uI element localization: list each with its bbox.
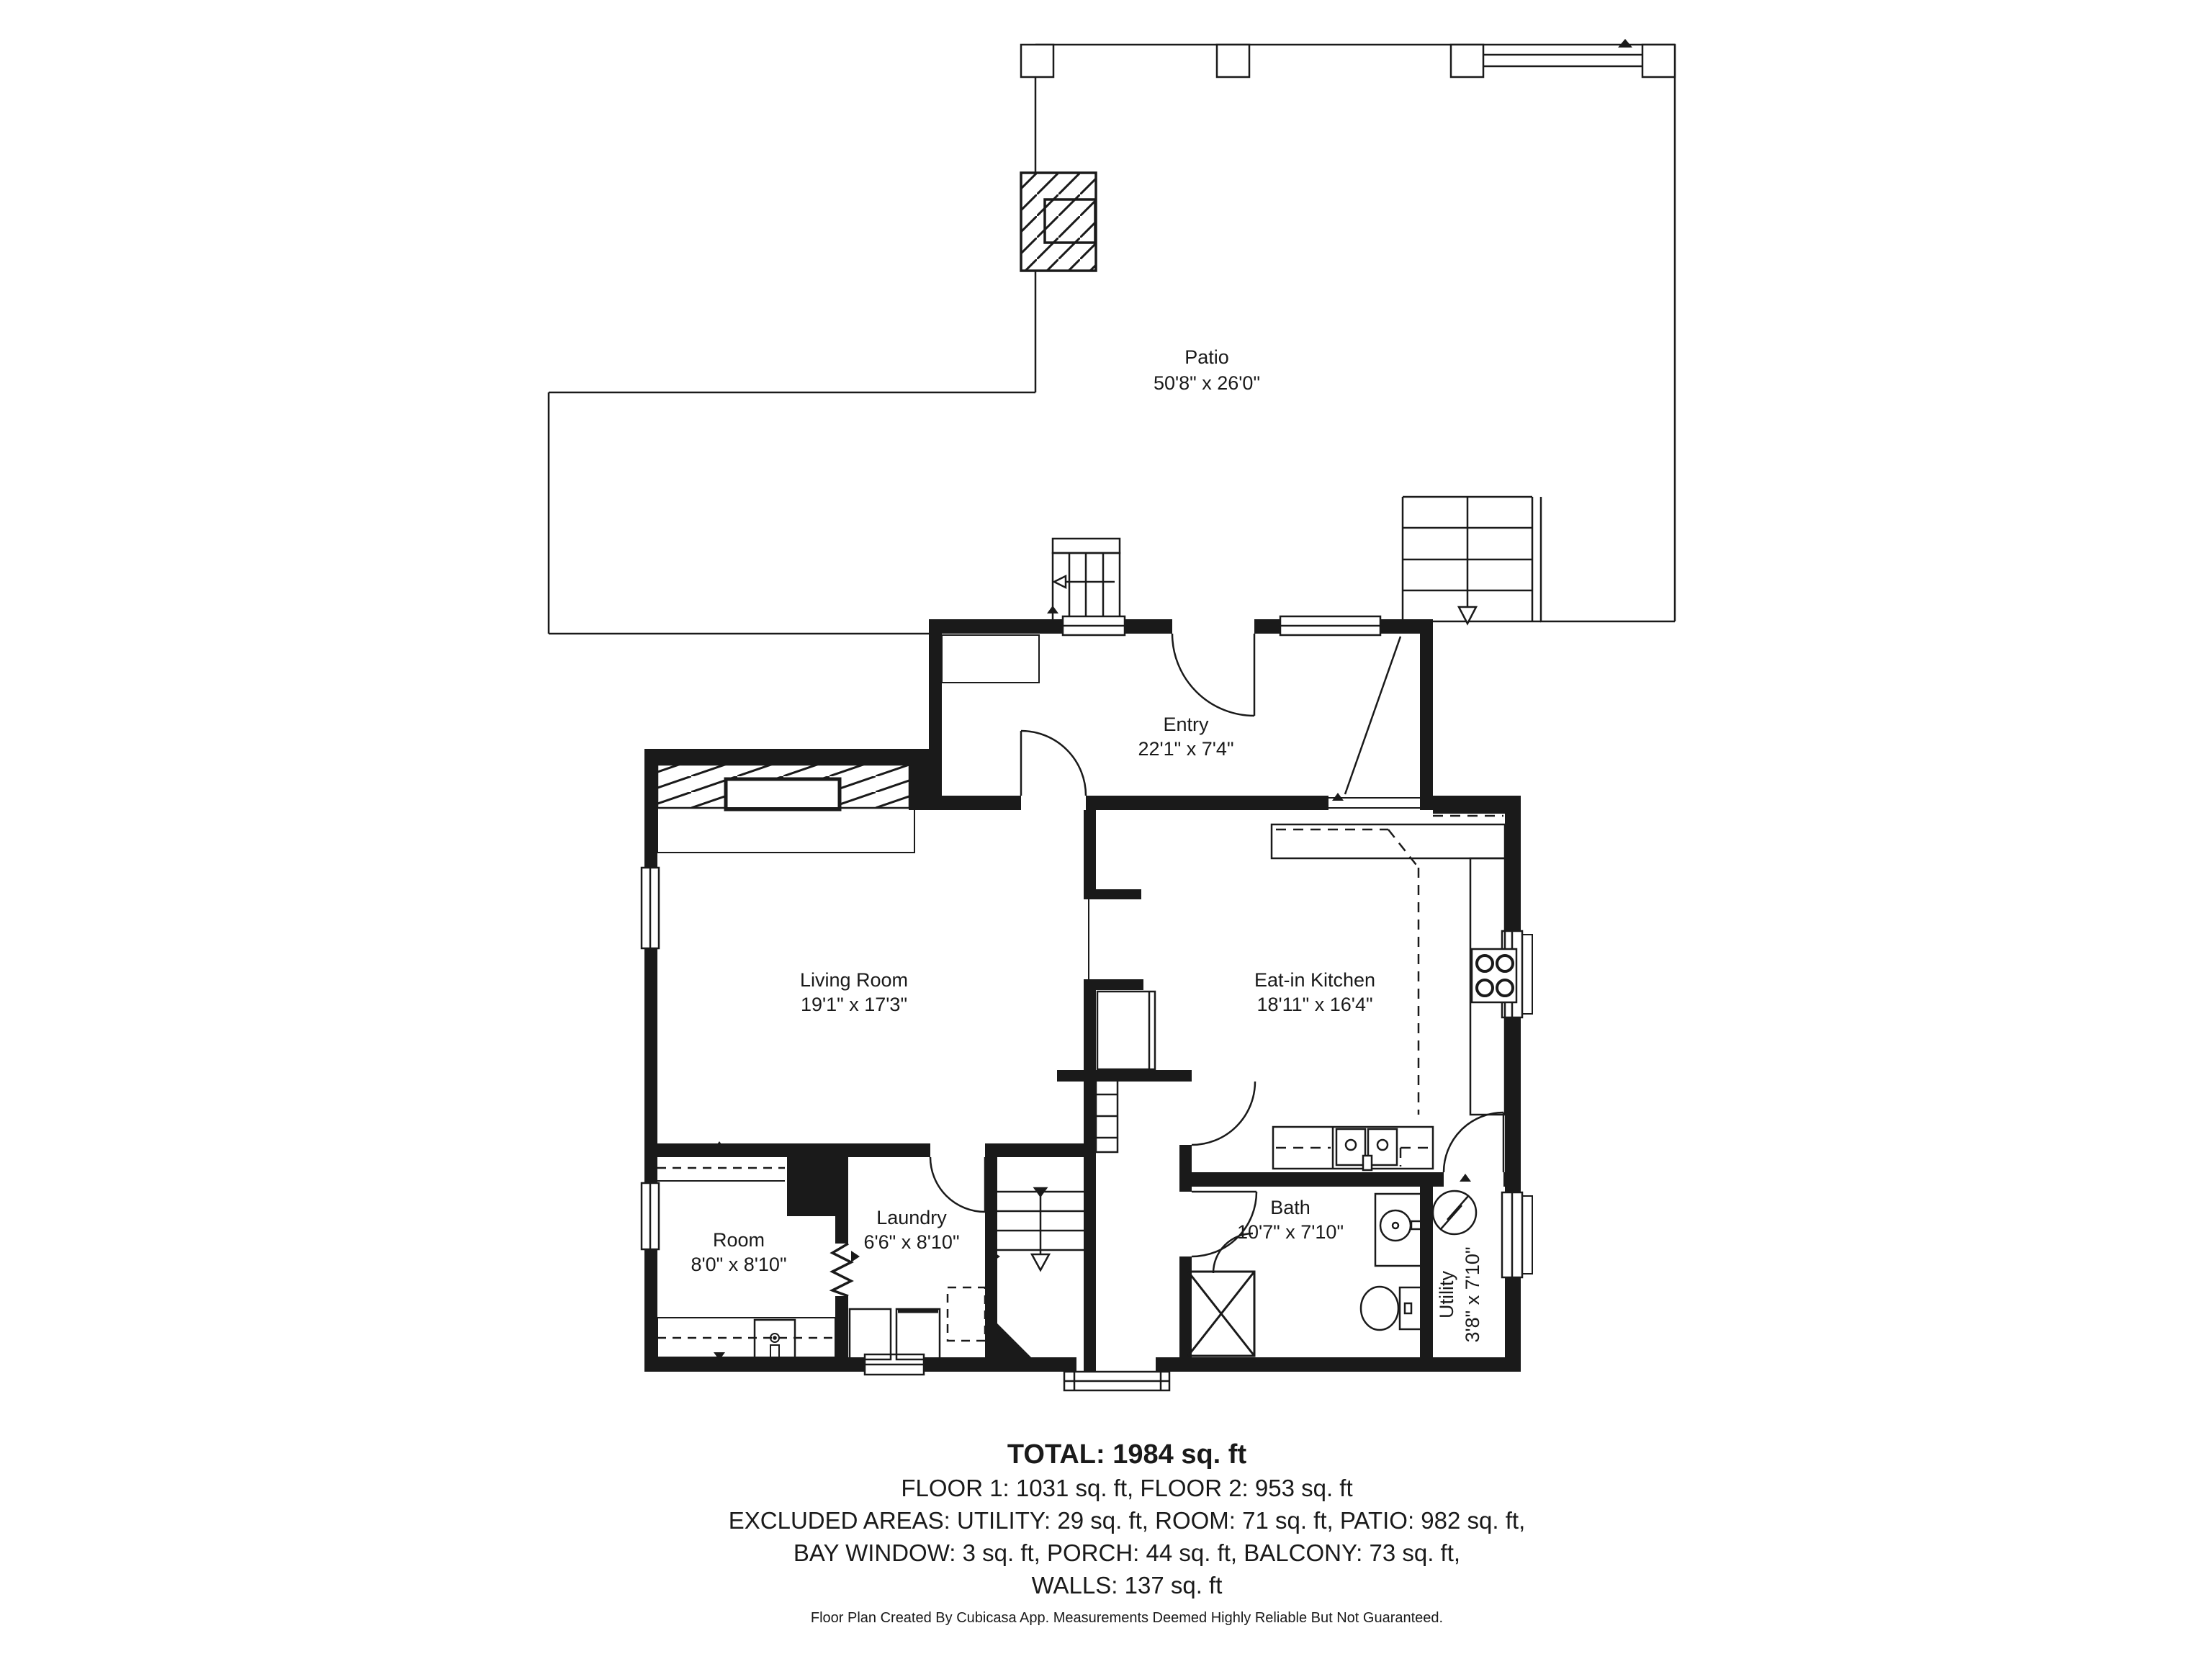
- total-area: TOTAL: 1984 sq. ft: [1007, 1439, 1247, 1470]
- disclaimer: Floor Plan Created By Cubicasa App. Meas…: [811, 1610, 1443, 1626]
- laundry-dims: 6'6" x 8'10": [863, 1231, 959, 1253]
- laundry-window: [865, 1354, 924, 1375]
- utility-label: Utility: [1436, 1271, 1457, 1318]
- excluded-areas-1: EXCLUDED AREAS: UTILITY: 29 sq. ft, ROOM…: [729, 1507, 1525, 1534]
- walls-area: WALLS: 137 sq. ft: [1032, 1572, 1223, 1599]
- floor-plan-canvas: Patio 50'8" x 26'0" Entry 22'1" x 7'4" L…: [0, 0, 2212, 1659]
- patio-dims: 50'8" x 26'0": [1154, 372, 1260, 394]
- living-room-window: [642, 868, 659, 948]
- entry-dims: 22'1" x 7'4": [1138, 738, 1233, 760]
- bath-dims: 10'7" x 7'10": [1237, 1221, 1344, 1243]
- excluded-areas-2: BAY WINDOW: 3 sq. ft, PORCH: 44 sq. ft, …: [793, 1539, 1460, 1566]
- background: [0, 0, 2212, 1659]
- kitchen-label: Eat-in Kitchen: [1254, 969, 1375, 991]
- entry-window-left: [1063, 616, 1125, 635]
- room-label: Room: [713, 1229, 765, 1251]
- kitchen-dims: 18'11" x 16'4": [1256, 994, 1372, 1015]
- entry-label: Entry: [1163, 714, 1209, 735]
- laundry-label: Laundry: [876, 1207, 947, 1228]
- room-dims: 8'0" x 8'10": [691, 1254, 786, 1275]
- floor-plan-page: Patio 50'8" x 26'0" Entry 22'1" x 7'4" L…: [0, 0, 2212, 1659]
- living-label: Living Room: [800, 969, 908, 991]
- back-steps: [1064, 1372, 1169, 1390]
- entry-window-right: [1280, 616, 1380, 635]
- patio-label: Patio: [1184, 346, 1229, 368]
- stove: [1472, 949, 1516, 1002]
- living-dims: 19'1" x 17'3": [801, 994, 907, 1015]
- floor-areas: FLOOR 1: 1031 sq. ft, FLOOR 2: 953 sq. f…: [901, 1475, 1352, 1501]
- bath-label: Bath: [1270, 1197, 1310, 1218]
- room-window: [642, 1183, 659, 1249]
- chimney: [1021, 173, 1096, 271]
- utility-dims: 3'8" x 7'10": [1462, 1246, 1483, 1342]
